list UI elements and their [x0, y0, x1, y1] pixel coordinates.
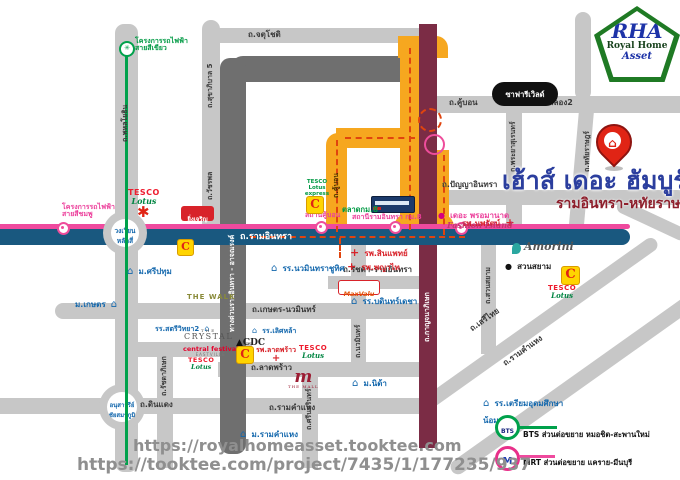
road-label-suansiam: ถ.สวนสยาม	[485, 267, 492, 304]
url-line2: https://tooktee.com/project/7435/1/17723…	[77, 457, 531, 475]
nawamin-school: ⌂ รร.นวมินทราชูทิศ	[271, 258, 345, 275]
building-icon: ⌂	[483, 398, 489, 409]
yingcharoen-market-badge: ยิ่งเจริญ	[181, 206, 214, 221]
location-map: วงเวียน หลักสี่ อนุสาวรีย์ ชัยสมรภูมิ ถ.…	[0, 0, 680, 480]
project-title: เฮ้าส์ เดอะ ฮัมบูร์ก	[502, 168, 680, 194]
road-label-khubon-h: ถ.คู้บอน	[449, 99, 478, 107]
bts-legend-label: BTS ส่วนต่อขยาย หมอชิต-สะพานใหม่	[523, 431, 650, 439]
mrt-legend-label: MRT ส่วนต่อขยาย แคราย-มีนบุรี	[523, 459, 632, 467]
road-sukhaphiban5-watcharaphon	[202, 20, 220, 232]
road-label-kanchanaphisek: ถ.กาญจนาภิเษก	[424, 292, 431, 342]
u-turn-loop-icon	[424, 134, 445, 155]
the-crystal-mall: THE CRYSTAL	[184, 329, 233, 342]
victory-label: อนุสาวรีย์	[107, 400, 137, 410]
ladprao-hospital: รพ.ลาดพร้าว +	[256, 347, 296, 364]
road-label-ramintra: ถ.รามอินทรา	[240, 233, 292, 242]
hospital-cross-icon: +	[347, 260, 356, 273]
rha-royal-home: Royal Home	[600, 41, 674, 51]
building-icon: ⌂	[111, 299, 117, 310]
expressway-top-arm	[230, 56, 420, 82]
victory-roundabout-center: อนุสาวรีย์ ชัยสมรภูมิ	[107, 392, 137, 422]
victory-label2: ชัยสมรภูมิ	[107, 410, 137, 420]
kasetsart-university: ม.เกษตร ⌂	[75, 294, 117, 311]
suan-siam-park: ● สวนสยาม	[505, 256, 551, 273]
road-label-panya-inthra: ถ.ปัญญาอินทรา	[442, 181, 497, 189]
route-dashes	[443, 155, 445, 235]
tesco-lotus-eastville-logo: TESCO Lotus	[188, 357, 214, 371]
phyathai-hospital: + รพ.พญาไท	[347, 257, 400, 274]
building-icon: ⌂	[127, 266, 133, 277]
building-icon: ⌂	[352, 378, 358, 389]
nida-university: ⌂ ม.นิด้า	[352, 373, 387, 390]
ramintra-km8-station-label: สถานีรามอินทรา กม.8	[352, 214, 422, 221]
bodindecha-school: ⌂ รร.บดินทร์เดชา	[351, 291, 417, 308]
pink-line-station-icon	[57, 222, 70, 235]
u-turn-loop-icon	[418, 108, 442, 132]
road-label-watcharaphon: ถ.วัชรพล	[207, 172, 214, 200]
road-label-phrayasuren: ถ.พระยาสุเรนทร์	[510, 121, 517, 172]
talad-km8-label: ตลาดกม.8	[342, 206, 378, 214]
road-label-kaset-nawamin: ถ.เกษตร-นวมินทร์	[252, 306, 316, 314]
lotus-flower-icon: ✱	[137, 205, 150, 221]
building-icon: ⌂	[271, 263, 277, 274]
project-subtitle: รามอินทรา-หทัยราษฎร์	[556, 197, 680, 212]
pink-line-project-label: โครงการรถไฟฟ้าสายสีชมพู	[62, 204, 115, 219]
green-line-icon: ✳	[119, 41, 135, 57]
the-walk-mall: THE WALK	[187, 294, 236, 301]
bts-legend-icon: BTS	[495, 415, 520, 440]
road-label-srinakarin: ถ.ศรีนครินทร์	[306, 389, 313, 431]
tesco-lotus-suansiam-logo: TESCO Lotus	[548, 285, 576, 300]
tesco-express-label: TESCO Lotus express	[302, 180, 332, 197]
khubon-station-icon	[315, 221, 328, 234]
road-label-phahonyothin: ถ.พหลโยธิน	[122, 105, 129, 142]
road-label-khubon-v: ถ.คู้บอน	[333, 173, 340, 198]
amorini-mall: Amorini	[524, 241, 574, 253]
tesco-lotus-store-icon: C	[561, 266, 580, 285]
route-dashes	[339, 238, 341, 258]
green-line-project-label: โครงการรถไฟฟ้าสายสีเขียว	[135, 38, 188, 53]
ramintra-km8-station-icon	[389, 221, 402, 234]
building-icon: ⌂	[351, 296, 357, 307]
tesco-lotus-store-icon: C	[306, 196, 324, 214]
rha-asset: Asset	[600, 51, 674, 62]
the-mall-logo: m THE MALL	[288, 370, 319, 389]
tesco-lotus-store-icon: C	[177, 239, 194, 256]
road-label-chatuchot: ถ.จตุโชติ	[248, 31, 281, 39]
road-label-expressway: ทางด่วนรามอินทรา - อาจณรงค์	[229, 235, 236, 332]
road-label-ladprao: ถ.ลาดพร้าว	[251, 364, 292, 372]
sripatum-university: ⌂ ม.ศรีปทุม	[127, 261, 172, 278]
hospital-cross-icon: +	[256, 354, 296, 364]
road-label-sukhaphiban5: ถ.สุขาภิบาล 5	[207, 64, 214, 108]
rha-logo-inner: RHA Royal Home Asset	[600, 11, 674, 77]
road-label-nawamin: ถ.นวมินทร์	[355, 325, 362, 358]
route-dashes	[345, 137, 415, 139]
url-line1: https://royalhomeasset.tooktee.com	[133, 438, 462, 455]
bts-legend-line	[519, 426, 557, 429]
safari-world-badge: ซาฟารีเวิลด์	[492, 82, 558, 106]
road-dindaeng-ramkhamhaeng	[0, 398, 433, 414]
house-icon: ⌂	[608, 136, 617, 150]
road-label-ratchadaphisek: ถ.รัชดาภิเษก	[161, 356, 168, 396]
fashion-island-mall: Fashion Island	[447, 221, 513, 229]
amorini-logo-icon	[512, 243, 521, 254]
road-label-dindaeng: ถ.ดินแดง	[140, 401, 173, 409]
tesco-lotus-ladprao-logo: TESCO Lotus	[299, 345, 327, 360]
tesco-lotus-store-icon: C	[236, 346, 254, 364]
road-north-vertical	[575, 12, 591, 100]
